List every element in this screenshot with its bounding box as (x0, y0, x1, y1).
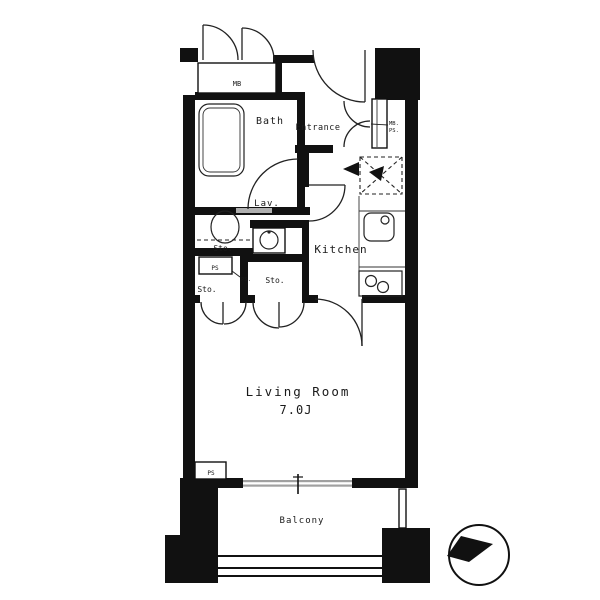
lavatory-label: Lav. (254, 199, 280, 209)
south-window (243, 474, 352, 494)
kitchen-label: Kitchen (314, 243, 367, 256)
wall-block-top-right (375, 48, 420, 100)
shoe-cabinet-door-top-swing (344, 101, 370, 127)
closet-left-door1-swing (201, 302, 223, 324)
outdoor-meter-box (198, 63, 276, 93)
washbasin-faucet-icon (267, 230, 270, 233)
wall-left (183, 95, 195, 480)
entrance-label: Entrance (296, 123, 341, 133)
storage-left-label: Sto. (197, 285, 216, 294)
entrance-note-line1: MB. (389, 121, 399, 127)
lav-box-leader (232, 271, 240, 277)
pipe-space-left-label: PS (211, 265, 219, 272)
entrance-note-line2: PS. (389, 128, 399, 134)
pillar-southeast (382, 528, 430, 583)
kitchen-faucet-icon (381, 216, 389, 224)
outdoor-closet-door1-swing (203, 25, 238, 60)
bath-label: Bath (256, 116, 284, 127)
storage-lav-label: Sto. (213, 244, 232, 253)
balcony-partition (399, 489, 406, 528)
wall-entrance-top (282, 55, 314, 63)
refrigerator-door-swing-icon (343, 162, 359, 176)
pillar-southwest (165, 535, 218, 583)
balcony-railing (218, 556, 382, 576)
front-door-swing (313, 50, 365, 102)
floor-plan-page: MB Bath Entrance MB. PS. Lav. Kitchen St… (0, 0, 600, 600)
wall-top-left-stub (180, 48, 198, 62)
floor-plan-drawing: MB Bath Entrance MB. PS. Lav. Kitchen St… (0, 0, 600, 600)
bathtub-inner-line (203, 108, 240, 172)
outdoor-closet-door2-swing (242, 28, 274, 60)
shoe-cabinet (372, 99, 387, 148)
kitchen-sink-icon (364, 213, 394, 241)
balcony-label: Balcony (280, 516, 325, 526)
stove-burner2-icon (378, 282, 389, 293)
stove-burner1-icon (366, 276, 377, 287)
shoe-cabinet-door-bottom-swing (344, 121, 370, 147)
wall-right (405, 98, 418, 488)
wall-storage-mid-top (248, 254, 309, 262)
living-room-size-label: 7.0J (280, 403, 313, 417)
wall-lav-niche (250, 220, 309, 228)
wall-hall-left-upper (302, 153, 309, 187)
storage-mid-label: Sto. (265, 276, 284, 285)
bathtub-icon (199, 104, 244, 176)
pipe-space-south-label: PS (207, 470, 215, 477)
closet-mid-door2-swing (279, 302, 304, 327)
living-room-label: Living Room (246, 384, 351, 399)
toilet-icon (211, 211, 239, 243)
wall-lr-south-right (352, 478, 418, 488)
wall-lr-top-a (183, 295, 200, 303)
kitchen-lr-door-swing (315, 299, 362, 346)
compass (447, 525, 509, 585)
lav-box-note: PS. (241, 277, 251, 283)
meter-box-label: MB (233, 80, 241, 88)
lav-door-swing (309, 185, 345, 221)
wall-entrance-bottom (295, 145, 333, 153)
closet-mid-door1-swing (253, 302, 279, 328)
wall-lr-top-b (247, 295, 255, 303)
pillar-southwest-upper (180, 478, 218, 535)
closet-left-door2-swing (224, 302, 246, 324)
refrigerator-arrow-icon (369, 166, 384, 181)
